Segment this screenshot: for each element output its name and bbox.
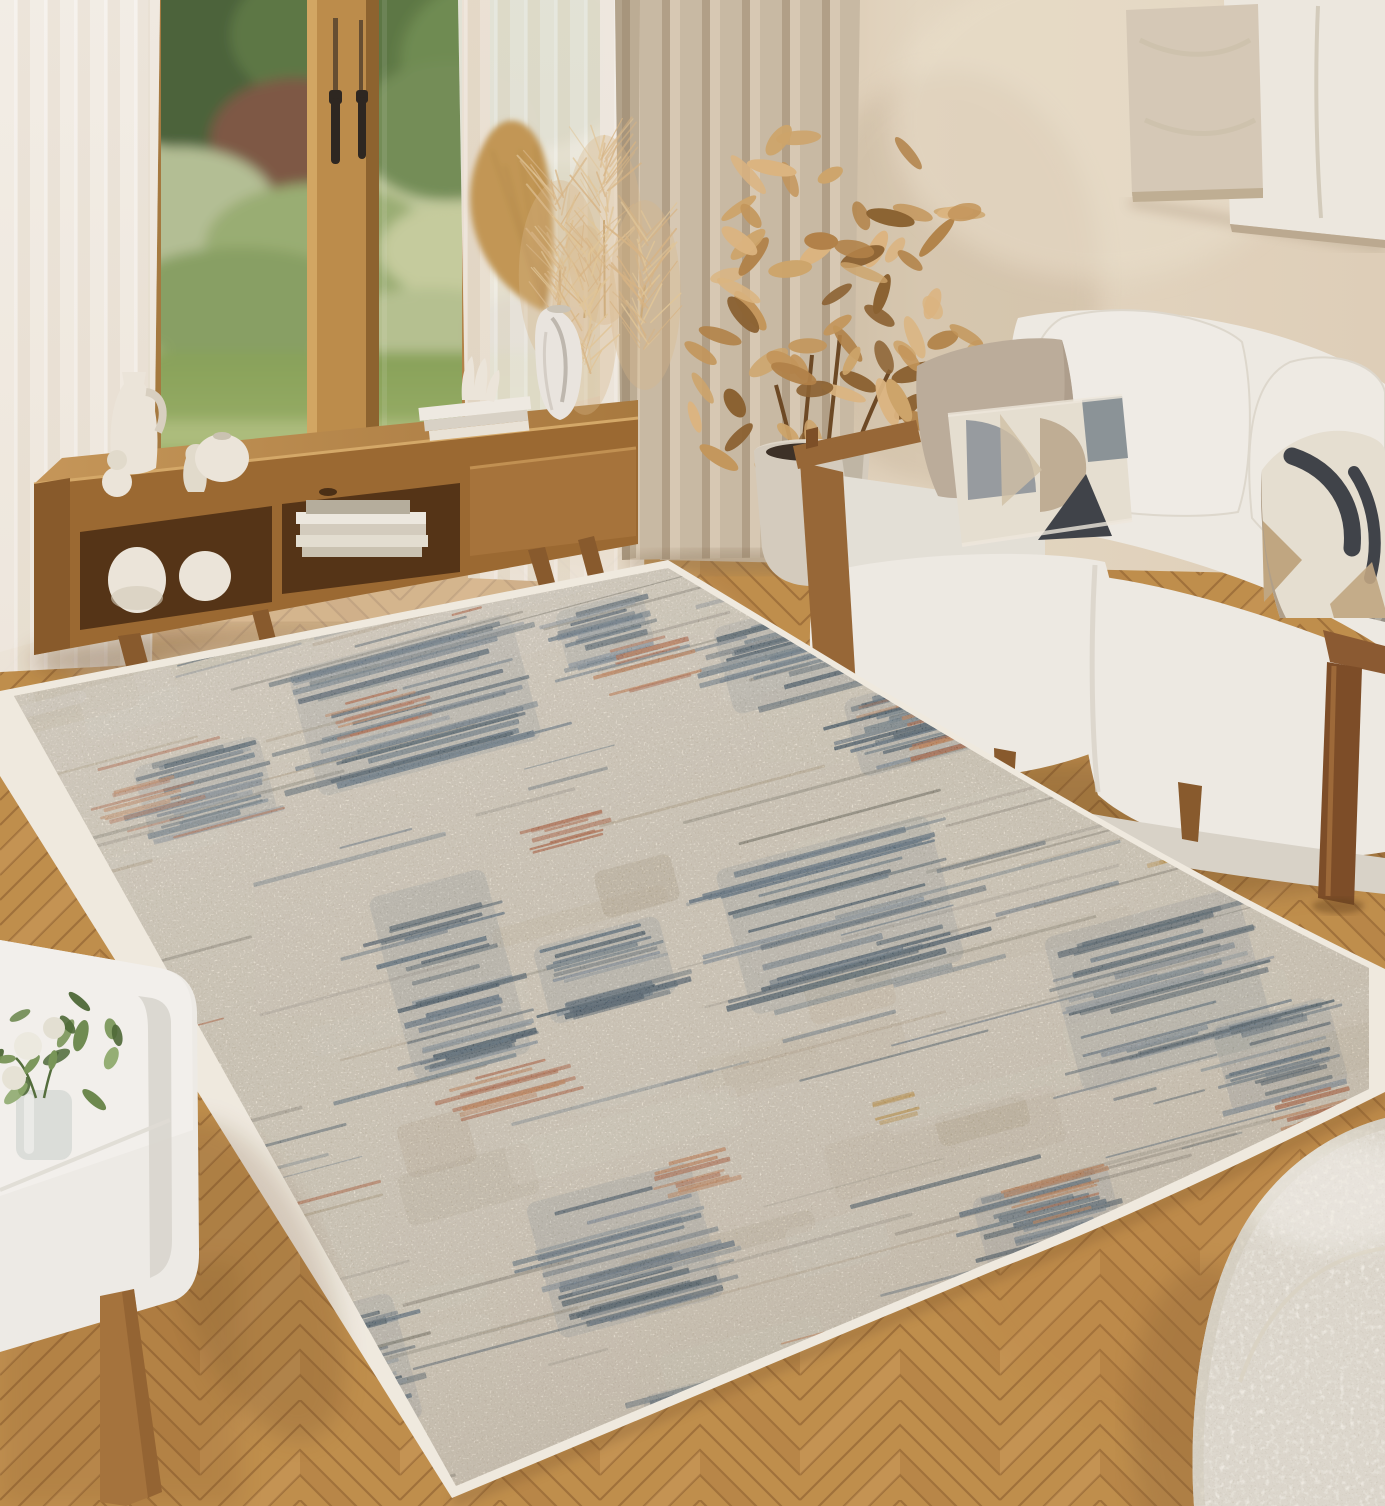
living-room-scene (0, 0, 1385, 1506)
photo-vignette (0, 0, 1385, 1506)
